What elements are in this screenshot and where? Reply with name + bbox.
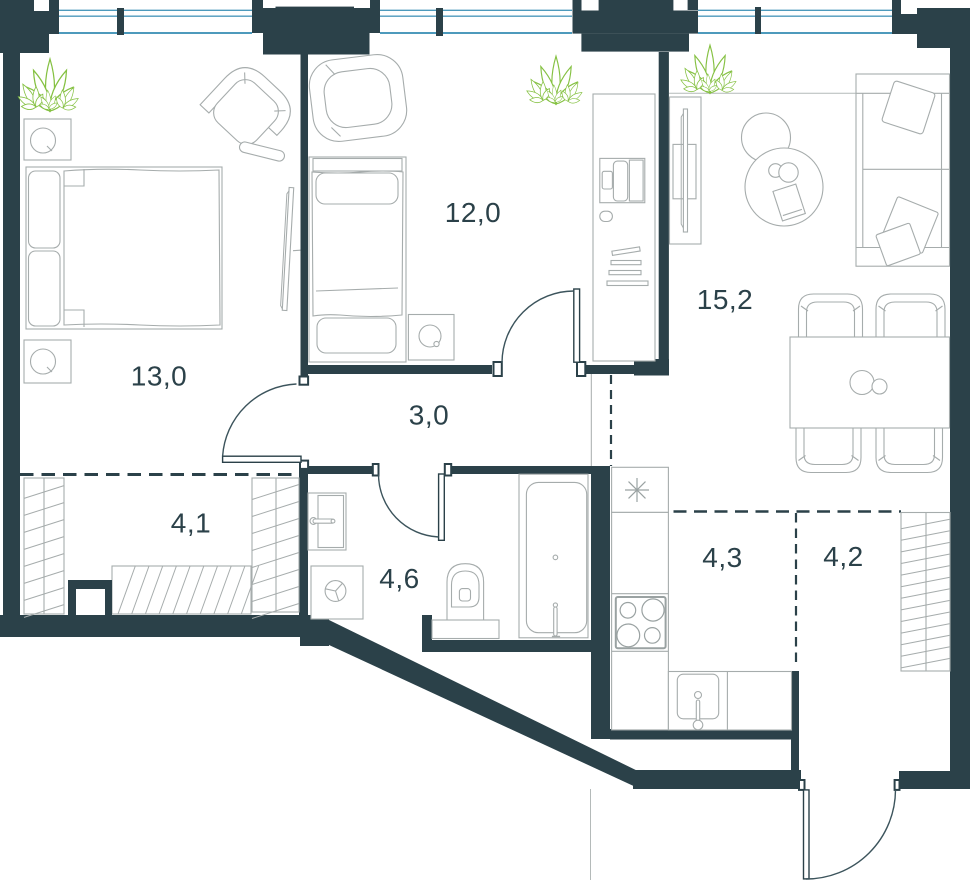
svg-text:4,2: 4,2 — [823, 541, 863, 572]
svg-text:13,0: 13,0 — [131, 361, 188, 392]
svg-text:4,6: 4,6 — [379, 563, 419, 594]
svg-text:3,0: 3,0 — [409, 400, 449, 431]
svg-text:4,3: 4,3 — [702, 542, 742, 573]
svg-text:15,2: 15,2 — [697, 284, 754, 315]
svg-text:12,0: 12,0 — [445, 197, 502, 228]
svg-text:4,1: 4,1 — [171, 508, 211, 539]
